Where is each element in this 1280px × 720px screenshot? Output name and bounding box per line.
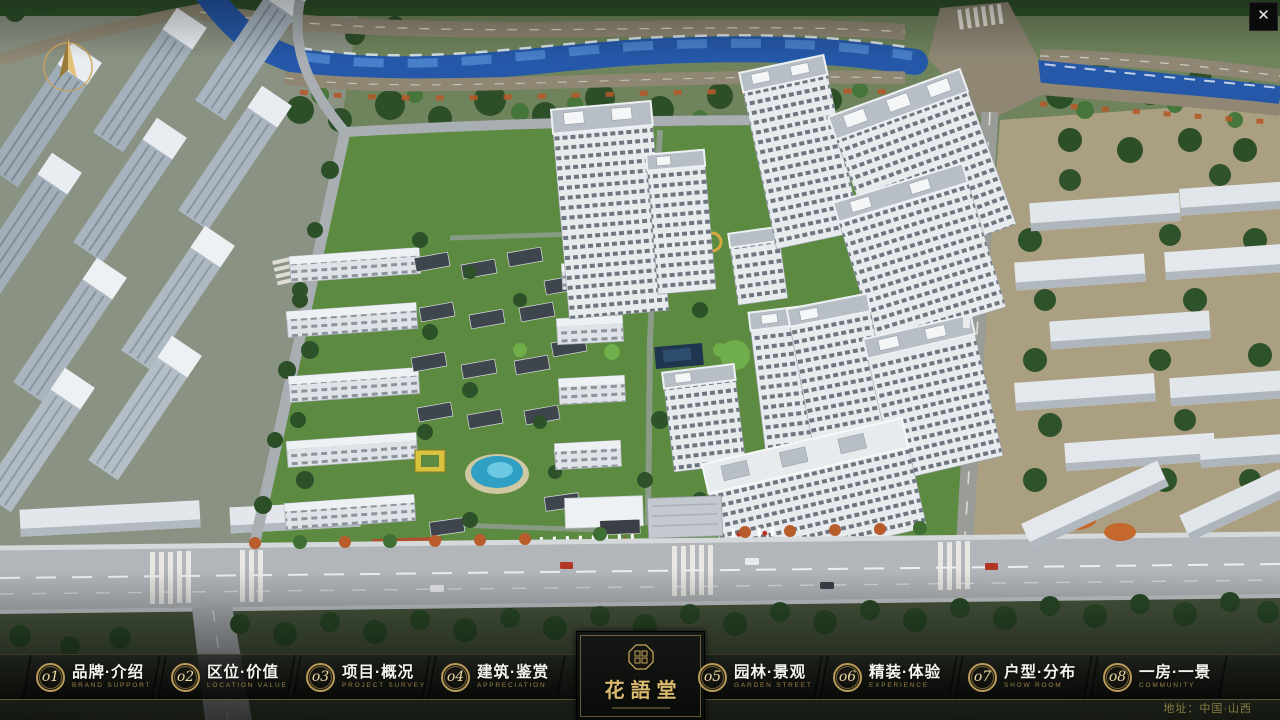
nav-number-badge: o3 [306,663,335,692]
nav-number-badge: o2 [171,663,200,692]
nav-item-architecture[interactable]: o4 建筑·鉴赏APPRECIATION [431,655,562,699]
nav-item-one-room-one-view[interactable]: o8 一房·一景COMMUNITY [1093,655,1224,699]
masterplan-render [0,0,1280,720]
nav-label-zh: 品牌·介绍 [72,665,151,681]
nav-label-en: APPRECIATION [477,683,549,690]
logo-subtitle-rule [612,707,670,709]
project-logo-button[interactable]: 花語堂 [576,631,705,720]
sales-presentation-screen: ✕ o1 品牌·介绍BRAND SUPPORT o2 区位·价值LOCATION… [0,0,1280,720]
close-button[interactable]: ✕ [1249,2,1278,31]
nav-number-badge: o6 [833,663,862,692]
nav-item-location-value[interactable]: o2 区位·价值LOCATION VALUE [161,655,292,699]
nav-item-interior-experience[interactable]: o6 精装·体验EXPERIENCE [823,655,954,699]
nav-label-en: BRAND SUPPORT [72,683,151,690]
nav-label-en: SHOW ROOM [1004,683,1076,690]
nav-label-en: GARDEN STREET [734,683,813,690]
nav-label-en: LOCATION VALUE [207,683,288,690]
compass-north-icon [38,34,98,96]
nav-group-right: o5 园林·景观GARDEN STREET o6 精装·体验EXPERIENCE… [688,655,1224,699]
nav-number-badge: o4 [441,663,470,692]
nav-label-en: PROJECT SURVEY [342,683,426,690]
nav-number-badge: o1 [36,663,65,692]
nav-label-zh: 一房·一景 [1139,665,1211,681]
nav-label-zh: 户型·分布 [1004,665,1076,681]
nav-label-en: COMMUNITY [1139,683,1211,690]
nav-item-brand-intro[interactable]: o1 品牌·介绍BRAND SUPPORT [26,655,157,699]
nav-label-en: EXPERIENCE [869,683,941,690]
nav-group-left: o1 品牌·介绍BRAND SUPPORT o2 区位·价值LOCATION V… [26,655,562,699]
seal-emblem-icon [628,644,654,670]
nav-label-zh: 精装·体验 [869,665,941,681]
nav-item-garden-landscape[interactable]: o5 园林·景观GARDEN STREET [688,655,819,699]
nav-label-zh: 园林·景观 [734,665,813,681]
nav-number-badge: o7 [968,663,997,692]
nav-label-zh: 项目·概况 [342,665,426,681]
nav-label-zh: 建筑·鉴赏 [477,665,549,681]
project-address: 地址：中国·山西 [1163,700,1252,716]
nav-label-zh: 区位·价值 [207,665,288,681]
nav-number-badge: o5 [698,663,727,692]
nav-number-badge: o8 [1103,663,1132,692]
logo-title: 花語堂 [599,674,683,703]
nav-item-project-overview[interactable]: o3 项目·概况PROJECT SURVEY [296,655,427,699]
nav-item-floorplan-distribution[interactable]: o7 户型·分布SHOW ROOM [958,655,1089,699]
